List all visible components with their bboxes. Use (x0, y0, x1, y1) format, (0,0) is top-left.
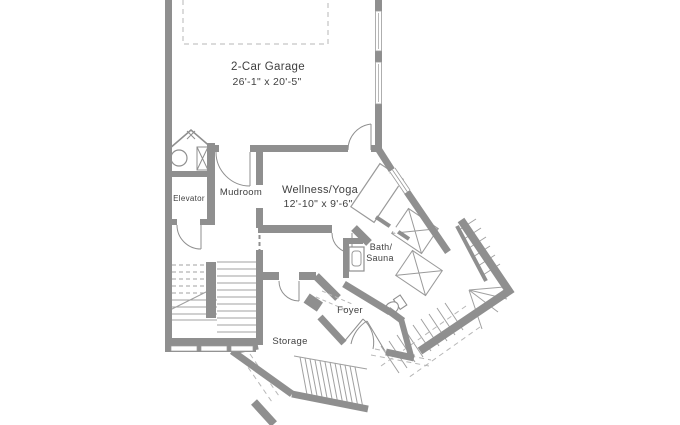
room-label-sauna: Sauna (366, 253, 394, 263)
porch-stub-wall (254, 402, 274, 424)
entry-wall-left (320, 317, 344, 343)
wellness-west-wall (256, 145, 263, 185)
bifold-x-mark (187, 131, 195, 139)
stairhall-south-wall (165, 338, 262, 345)
sauna-door-gap (390, 226, 398, 232)
hall-foyer-wall (316, 276, 338, 298)
junction-wall-block (304, 294, 323, 312)
room-label-mudroom: Mudroom (220, 187, 262, 198)
storage-door (279, 281, 299, 301)
utility-chase (197, 147, 208, 170)
sauna-bench-2 (396, 250, 443, 295)
vanity-sink (349, 247, 364, 271)
room-dims-wellness: 12'-10" x 9'-6" (283, 198, 352, 210)
garage-right-wall (375, 0, 382, 11)
diagonal-walls (169, 130, 509, 424)
storage-sw-wall (232, 351, 292, 394)
elevator-door (177, 225, 201, 249)
mudroom-door (216, 152, 250, 186)
room-label-wellness: Wellness/Yoga (282, 184, 359, 196)
utility-tank (171, 150, 187, 166)
elevator-wall (207, 177, 215, 225)
storage-north-wall (262, 272, 279, 280)
parking-pad-dashed-outline (183, 0, 328, 44)
stair-treads-above-dashed (172, 265, 205, 293)
room-label-foyer: Foyer (337, 305, 363, 316)
garage-south-wall (215, 145, 219, 152)
room-label-garage: 2-Car Garage (231, 61, 305, 73)
floor-plan-page: 2-Car Garage 26'-1" x 20'-5" Wellness/Yo… (0, 0, 680, 425)
floor-plan-canvas: 2-Car Garage 26'-1" x 20'-5" Wellness/Yo… (0, 0, 680, 425)
double-entry-doors (343, 319, 385, 351)
window-band (171, 346, 253, 351)
room-label-elevator: Elevator (173, 194, 205, 203)
room-label-bath: Bath/ (370, 242, 393, 252)
bifold-closet-doors (169, 130, 213, 149)
walls (165, 0, 382, 352)
room-dims-garage: 26'-1" x 20'-5" (232, 76, 301, 88)
wellness-south-wall (258, 225, 332, 233)
stair-treads-down (217, 262, 258, 332)
room-label-storage: Storage (272, 336, 307, 347)
stair-center-wall (206, 262, 216, 318)
garage-entry-door (348, 124, 371, 150)
